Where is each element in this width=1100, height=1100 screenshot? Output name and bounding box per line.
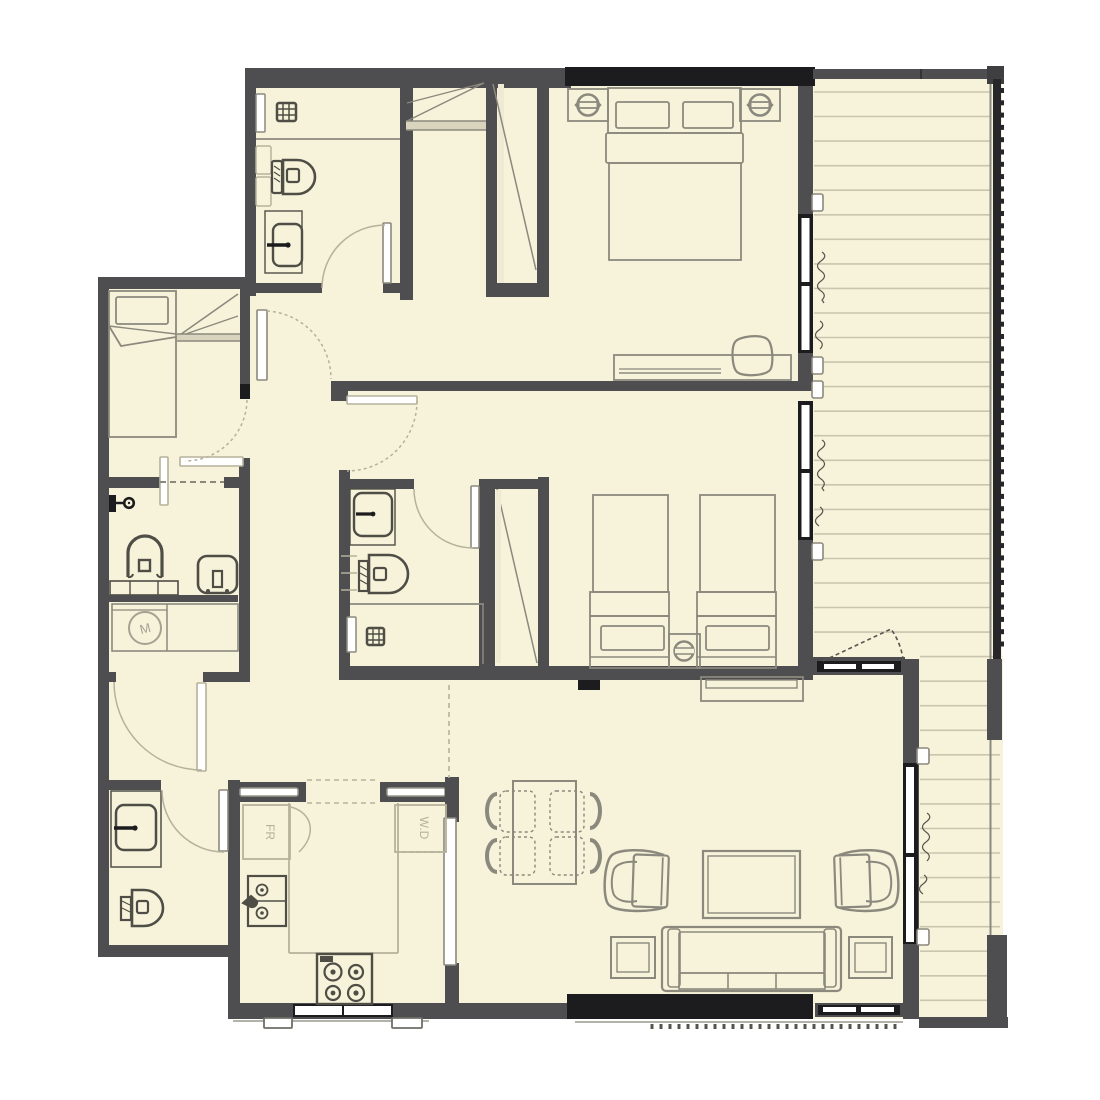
svg-text:W.D: W.D [417,817,431,840]
svg-text:FR: FR [263,824,277,840]
